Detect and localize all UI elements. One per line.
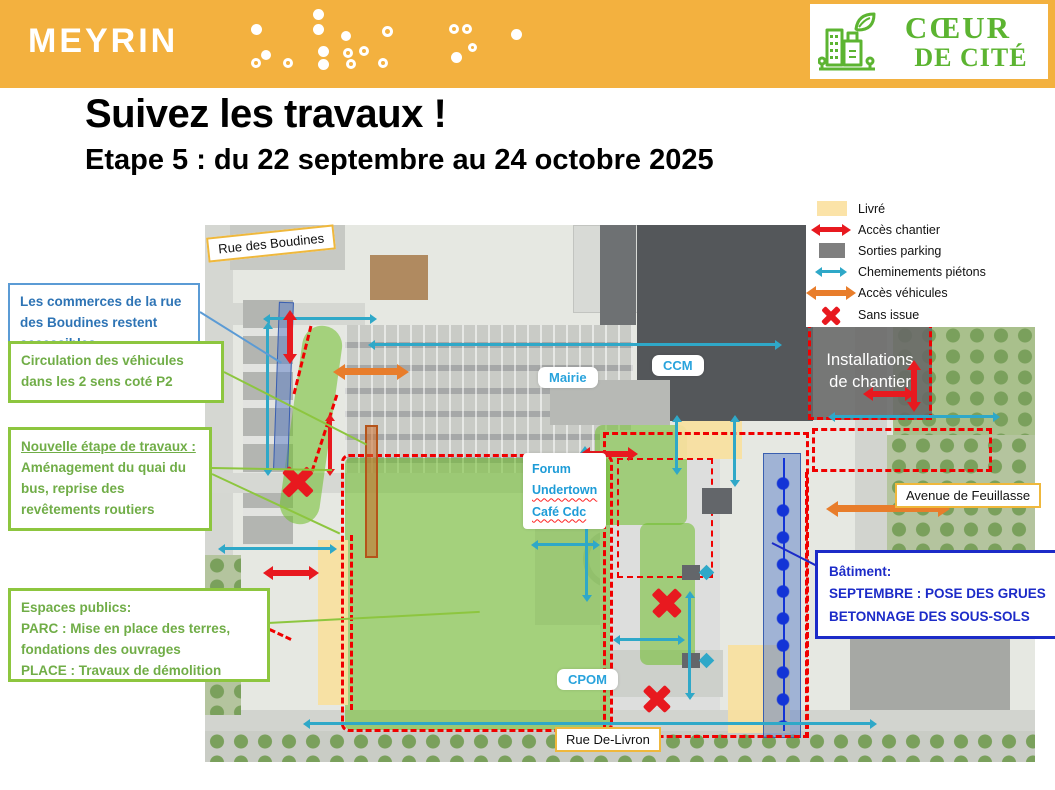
dead-end-x-south <box>642 684 672 714</box>
legend-row-sans-issue: Sans issue <box>806 303 1050 327</box>
batiment-line2: SEPTEMBRE : POSE DES GRUES <box>829 583 1046 605</box>
parking-exit-block-3 <box>682 653 700 668</box>
bus-quai-zone <box>365 425 378 558</box>
top-banner: MEYRIN <box>0 0 1055 88</box>
parking-exit-block-1 <box>702 488 732 514</box>
page-title: Suivez les travaux ! <box>85 92 446 137</box>
legend-row-acces-chantier: Accès chantier <box>806 219 1050 240</box>
pedestrian-arrow-9 <box>835 415 993 418</box>
street-label-avenue-de-feuillasse: Avenue de Feuillasse <box>895 483 1041 508</box>
page-subtitle: Etape 5 : du 22 septembre au 24 octobre … <box>85 144 714 177</box>
legend-row-sorties-parking: Sorties parking <box>806 240 1050 261</box>
meyrin-logo: MEYRIN <box>28 22 178 61</box>
place-label-ccm: CCM <box>652 355 704 376</box>
site-access-arrow-6 <box>911 370 917 402</box>
forum-label: Forum <box>532 459 597 480</box>
dashed-segment-west <box>350 535 353 710</box>
nouvelle-etape-title: Nouvelle étape de travaux : <box>21 439 196 454</box>
cafe-cdc-label: Café Cdc <box>532 502 597 523</box>
red-double-arrow-icon <box>820 227 842 232</box>
place-label-forum-undertown-cafe: Forum Undertown Café Cdc <box>523 453 606 529</box>
installations-label-line1: Installations <box>826 349 913 371</box>
nouvelle-etape-body: Aménagement du quai du bus, reprise des … <box>21 460 186 517</box>
callout-espaces-publics: Espaces publics: PARC : Mise en place de… <box>8 588 270 682</box>
street-label-rue-de-livron: Rue De-Livron <box>555 727 661 752</box>
pedestrian-arrow-10 <box>310 722 870 725</box>
construction-inner-dashed <box>617 458 713 578</box>
coeur-de-cite-wordmark: CŒUR DE CITÉ <box>876 12 1040 72</box>
pedestrian-arrow-11 <box>688 598 691 693</box>
callout-nouvelle-etape: Nouvelle étape de travaux : Aménagement … <box>8 427 212 531</box>
site-access-arrow-1 <box>287 320 293 354</box>
dead-end-x-middle <box>651 587 683 619</box>
espaces-line1: Espaces publics: <box>21 598 257 619</box>
site-access-arrow-5 <box>873 391 905 397</box>
vehicle-access-arrow-west <box>345 368 397 375</box>
legend-row-acces-vehicules: Accès véhicules <box>806 282 1050 303</box>
legend-row-livre: Livré <box>806 198 1050 219</box>
dashed-segment-east <box>805 472 808 738</box>
green-city-leaf-icon <box>818 11 876 73</box>
map-legend: Livré Accès chantier Sorties parking Che… <box>806 198 1050 327</box>
batiment-line1: Bâtiment: <box>829 561 1046 583</box>
gray-area-swatch-icon <box>819 243 845 258</box>
pedestrian-arrow-3 <box>375 343 775 346</box>
espaces-line2: PARC : Mise en place des terres, fondati… <box>21 619 257 661</box>
legend-row-cheminements: Cheminements piétons <box>806 261 1050 282</box>
orange-double-arrow-icon <box>816 290 846 296</box>
cyan-double-arrow-icon <box>822 270 840 273</box>
feuillasse-zone-dashed <box>812 428 992 472</box>
batiment-callout: Bâtiment: SEPTEMBRE : POSE DES GRUES BET… <box>815 550 1055 639</box>
espaces-line3: PLACE : Travaux de démolition <box>21 661 257 682</box>
pedestrian-arrow-4 <box>225 547 330 550</box>
pedestrian-arrow-13 <box>620 638 678 641</box>
poster-page: MEYRIN <box>0 0 1055 790</box>
parking-exit-block-2 <box>682 565 700 580</box>
coeur-de-cite-logo: CŒUR DE CITÉ <box>810 4 1048 79</box>
callout-circulation: Circulation des véhicules dans les 2 sen… <box>8 341 224 403</box>
site-access-arrow-3 <box>273 570 309 576</box>
place-label-mairie: Mairie <box>538 367 598 388</box>
pedestrian-arrow-12 <box>585 525 588 595</box>
pedestrian-arrow-8 <box>733 422 736 480</box>
yellow-area-swatch-icon <box>817 201 847 216</box>
pedestrian-arrow-7 <box>675 422 678 468</box>
red-x-icon <box>820 305 841 326</box>
place-label-cpom: CPOM <box>557 669 618 690</box>
pedestrian-arrow-2 <box>266 329 269 469</box>
batiment-line3: BETONNAGE DES SOUS-SOLS <box>829 606 1046 628</box>
undertown-label: Undertown <box>532 480 597 501</box>
